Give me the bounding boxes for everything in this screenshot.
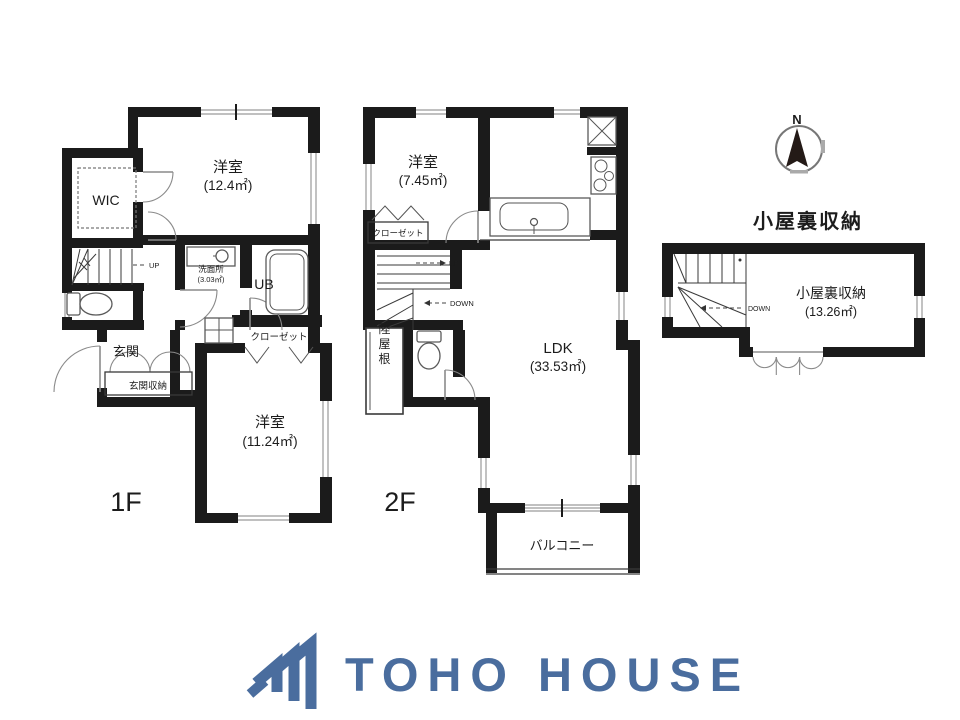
- compass-north-label: N: [792, 112, 801, 127]
- plan-attic: N 小屋裏収納: [662, 112, 925, 375]
- room-label-bath: UB: [254, 276, 273, 292]
- room-label-washroom: 洗面所: [198, 264, 224, 274]
- balcony-sliding-door: [525, 499, 600, 517]
- room-area-washroom: (3.03㎡): [197, 275, 225, 284]
- room-label-ldk: LDK: [543, 340, 572, 357]
- stairs-down-label-attic: DOWN: [748, 306, 770, 313]
- plan-1f-stairs: [72, 249, 146, 285]
- room-area-attic: (13.26㎡): [805, 305, 857, 319]
- room-label-entrance-storage: 玄関収納: [129, 380, 167, 392]
- toho-house-logo-icon: [250, 644, 311, 709]
- stairs-down-label-2f: DOWN: [450, 299, 474, 308]
- kitchen-sink-icon: [480, 198, 590, 240]
- plan-attic-walls: [662, 243, 925, 357]
- stairs-up-label-2f: UP: [449, 259, 459, 268]
- refrigerator-icon: [588, 117, 616, 145]
- room-area-bedroom-north: (12.4㎡): [204, 178, 253, 193]
- floor-label-1f: 1F: [110, 487, 142, 517]
- stairs-up-label-1f: UP: [149, 261, 159, 270]
- room-label-bedroom-2f: 洋室: [408, 154, 438, 171]
- floor-plan-page: 洋室 (12.4㎡) WIC UP 洗面所 (3.03㎡) UB クローゼット …: [0, 0, 960, 720]
- plan-2f-stairs: [377, 256, 450, 330]
- plan-attic-windows: [662, 296, 925, 318]
- room-label-entrance: 玄関: [113, 344, 139, 359]
- compass: N: [776, 112, 825, 174]
- floor-plan-drawing: 洋室 (12.4㎡) WIC UP 洗面所 (3.03㎡) UB クローゼット …: [0, 0, 960, 720]
- attic-folding-doors: [753, 357, 823, 375]
- room-area-bedroom-2f: (7.45㎡): [399, 173, 448, 188]
- room-label-bedroom-north: 洋室: [213, 159, 243, 176]
- toho-house-logo: TOHO HOUSE: [250, 644, 750, 709]
- plan-attic-stairs: [674, 254, 746, 327]
- room-label-attic: 小屋裏収納: [796, 285, 866, 301]
- plan-1f: 洋室 (12.4㎡) WIC UP 洗面所 (3.03㎡) UB クローゼット …: [54, 104, 332, 523]
- toilet-2f-icon: [417, 331, 441, 369]
- compass-needle: [786, 128, 808, 167]
- room-label-closet-2f: クローゼット: [372, 228, 423, 238]
- attic-title: 小屋裏収納: [753, 209, 863, 233]
- room-label-balcony: バルコニー: [530, 538, 595, 553]
- room-label-wic: WIC: [92, 192, 119, 208]
- washing-machine-icon: [205, 318, 233, 343]
- room-label-closet-1f: クローゼット: [250, 331, 307, 343]
- toho-house-logo-text: TOHO HOUSE: [345, 648, 750, 701]
- plan-attic-labels: DOWN 小屋裏収納 (13.26㎡): [748, 285, 866, 319]
- room-label-flat-roof: 陸屋根: [377, 322, 391, 367]
- stove-icon: [591, 157, 616, 194]
- floor-label-2f: 2F: [384, 487, 416, 517]
- room-area-ldk: (33.53㎡): [530, 359, 586, 374]
- room-label-bedroom-south: 洋室: [255, 414, 285, 431]
- toilet-1f-icon: [67, 293, 112, 315]
- room-area-bedroom-south: (11.24㎡): [242, 434, 297, 449]
- plan-1f-walls: [62, 107, 332, 523]
- plan-2f: 洋室 (7.45㎡) クローゼット UP DOWN 陸屋根 LDK (33.53…: [363, 107, 640, 574]
